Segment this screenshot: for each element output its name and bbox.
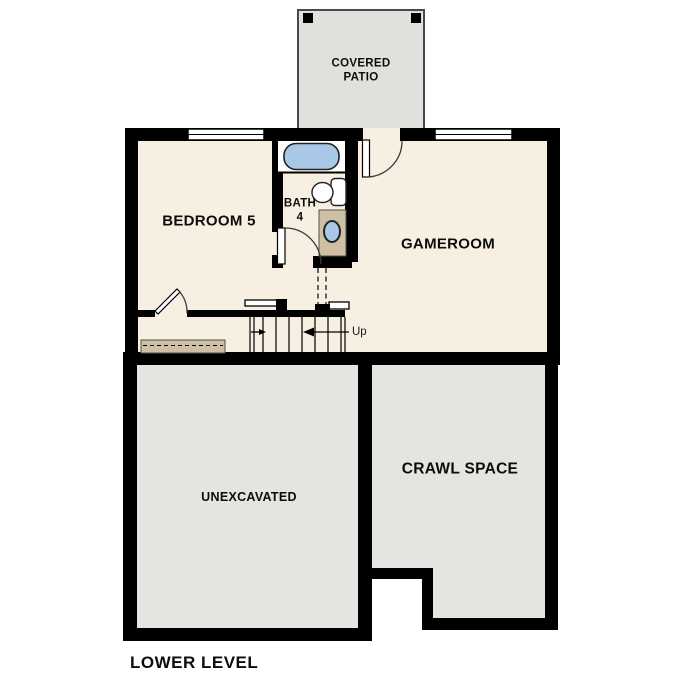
wall-bath-right	[345, 141, 358, 262]
floor-plan-drawing	[0, 0, 687, 687]
window-bedroom	[188, 129, 264, 140]
stair-railing-right	[329, 302, 349, 309]
crawl-space-floor-lower	[433, 568, 545, 618]
hall-storage	[141, 340, 225, 353]
crawl-space-label: CRAWL SPACE	[402, 459, 518, 478]
plan-title: LOWER LEVEL	[130, 653, 258, 673]
bedroom-label: BEDROOM 5	[162, 213, 256, 232]
floor-plan: COVERED PATIO BEDROOM 5 BATH 4 GAMEROOM …	[0, 0, 687, 687]
sink	[324, 221, 340, 242]
stair-newel-post-right	[315, 304, 330, 316]
stair-newel-post-left	[276, 299, 287, 316]
crawl-notch-wall-v	[422, 568, 433, 630]
covered-patio-label: COVERED PATIO	[332, 57, 391, 86]
window-gameroom	[435, 129, 512, 140]
stair-up-label: Up	[352, 326, 367, 338]
opening-patio-door	[363, 128, 400, 141]
wall-vanity-bottom	[313, 256, 352, 268]
patio-post-right	[411, 13, 421, 23]
stair-railing-left	[245, 300, 278, 306]
gameroom-label: GAMEROOM	[401, 236, 495, 255]
unexcavated-label: UNEXCAVATED	[201, 490, 297, 506]
crawl-notch-cutout	[372, 579, 422, 641]
crawl-notch-wall-h	[358, 568, 433, 579]
patio-post-left	[303, 13, 313, 23]
lower-level-structure	[123, 352, 558, 641]
bathtub	[284, 144, 339, 170]
bath-label: BATH 4	[284, 197, 316, 226]
